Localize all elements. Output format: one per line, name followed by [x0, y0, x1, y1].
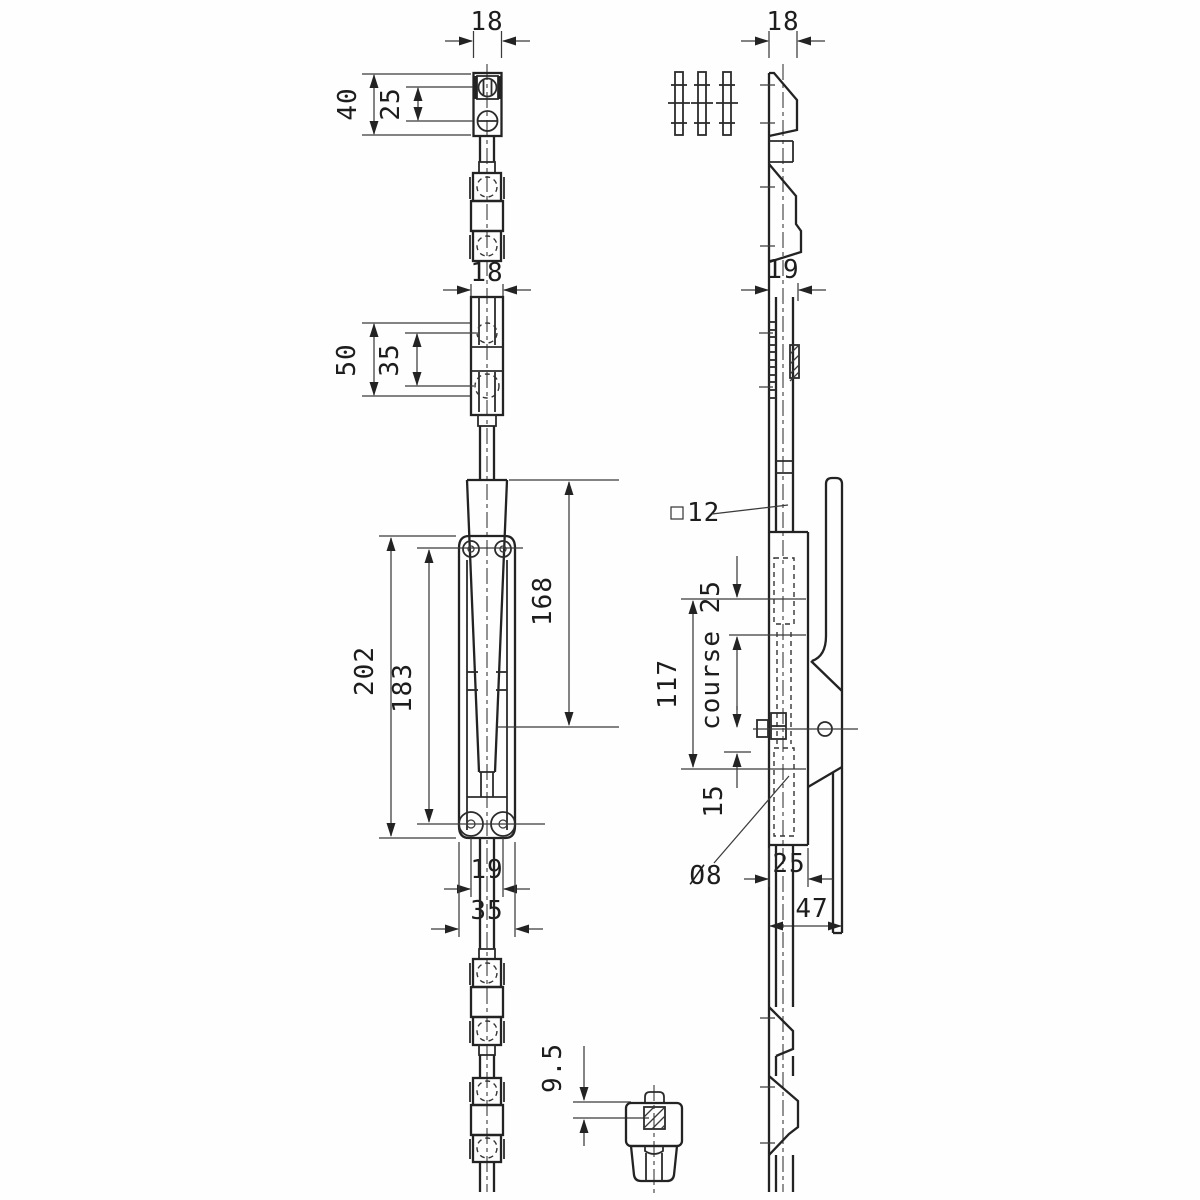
dim-label-hole-dia: Ø8	[689, 861, 722, 891]
dim-label-side-depth-channel: 19	[766, 255, 799, 285]
dim-label-side-depth-top: 18	[766, 7, 799, 37]
front-dim-width-top: 18	[445, 7, 530, 58]
side-dim-depth-top: 18	[741, 7, 825, 58]
dim-label-travel: course 25	[696, 580, 726, 730]
dim-label-front-width-mid: 18	[470, 258, 503, 288]
detail-dim-thickness: 9.5	[538, 1043, 649, 1146]
front-dim-channel: 50 35	[332, 323, 476, 396]
square-section-symbol	[671, 507, 683, 519]
dim-label-body-span: 117	[653, 659, 683, 709]
square-section-callout: 12	[671, 498, 788, 528]
dim-label-guide-height: 50	[332, 343, 362, 376]
side-lower-profiles	[760, 845, 798, 1192]
dim-label-screw-spacing: 19	[470, 855, 503, 885]
technical-drawing-page: 18 40 25	[0, 0, 1200, 1200]
dim-label-case-depth: 25	[772, 849, 805, 879]
dim-label-keeper-height: 40	[333, 87, 363, 120]
drawing-svg: 18 40 25	[0, 0, 1200, 1200]
dim-label-plate-width: 35	[470, 896, 503, 926]
dim-label-front-width-top: 18	[470, 7, 503, 37]
dim-label-guide-hole-spacing: 35	[375, 343, 405, 376]
dim-label-keeper-hole-spacing: 25	[376, 87, 406, 120]
dim-label-overall-depth: 47	[795, 894, 828, 924]
front-dim-keeper: 40 25	[333, 74, 473, 135]
front-view: 18 40 25	[332, 7, 619, 1192]
detail-end-fitting	[626, 1085, 682, 1196]
side-rack-rod	[759, 297, 799, 532]
connecting-pins	[668, 72, 738, 135]
dim-label-lever-length: 168	[528, 576, 558, 626]
dim-label-hole-span: 183	[388, 663, 418, 713]
side-upper-profiles	[760, 73, 801, 262]
side-view: 18	[653, 7, 858, 1192]
detail-view: 9.5	[538, 1043, 682, 1196]
dim-label-plate-length: 202	[350, 646, 380, 696]
dim-label-offset-bottom: 15	[699, 784, 729, 817]
front-dim-lengths: 168 202 183	[350, 480, 619, 838]
dim-label-rod-thickness: 9.5	[538, 1043, 568, 1093]
